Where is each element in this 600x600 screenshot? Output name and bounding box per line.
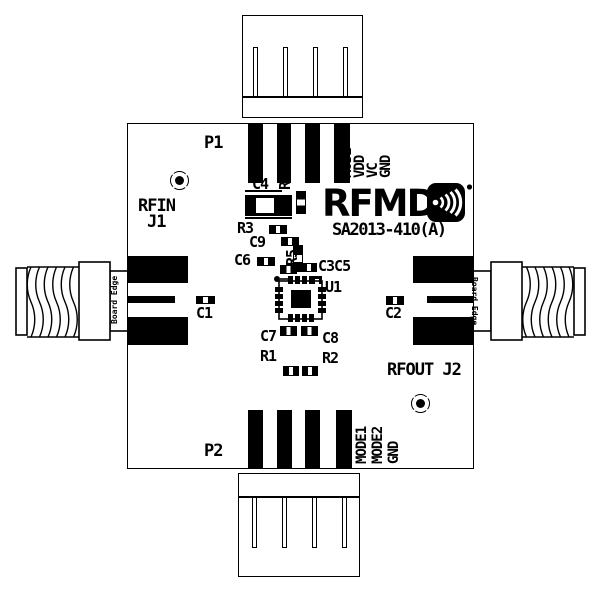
- component-c1: [196, 296, 215, 304]
- header-pin: [252, 497, 257, 548]
- rfout-ground-pad-bottom: [413, 317, 473, 345]
- component-r2: [302, 366, 318, 376]
- rfin-ground-pad-bottom: [128, 317, 188, 345]
- rfout-trace: [427, 296, 473, 303]
- label-c3c5: C3C5: [318, 259, 350, 274]
- component-c6: [257, 257, 275, 266]
- rfout-ground-pad-top: [413, 256, 473, 283]
- component-u1-qfn-footprint: [271, 272, 327, 326]
- header-pin: [283, 47, 288, 97]
- part-number: SA2013-410(A): [332, 222, 446, 239]
- pcb-assembly-drawing: { "colors": { "ink": "#000000", "bg": "#…: [0, 0, 600, 600]
- rfin-ground-pad-top: [128, 256, 188, 283]
- p2-pad: [305, 410, 320, 468]
- label-c9: C9: [249, 235, 265, 250]
- label-j1: J1: [147, 214, 165, 231]
- label-c2: C2: [385, 306, 401, 321]
- label-board-edge-left: Board Edge: [111, 276, 119, 324]
- component-c7: [280, 326, 297, 336]
- header-pin: [253, 47, 258, 97]
- mounting-hole-top-left: [170, 171, 189, 190]
- label-pin-mode2: MODE2: [371, 427, 385, 464]
- p2-pad: [248, 410, 263, 468]
- header-pin: [282, 497, 287, 548]
- rfin-trace: [128, 296, 175, 303]
- label-p2: P2: [204, 443, 222, 460]
- label-pin-mode1: MODE1: [355, 427, 369, 464]
- header-pin: [313, 47, 318, 97]
- label-pin-gnd-bottom-1: GND: [340, 442, 354, 464]
- component-r4: [296, 191, 306, 214]
- label-board-edge-right: Board Edge: [470, 277, 478, 325]
- label-r2: R2: [322, 351, 338, 366]
- label-c4: C4: [252, 177, 268, 192]
- label-pin-gnd-top: GND: [379, 156, 393, 178]
- sma-connector-right: [470, 252, 590, 348]
- header-pin: [342, 497, 347, 548]
- label-u1: U1: [325, 280, 341, 295]
- rfmd-logo-text: RFMD: [322, 187, 435, 222]
- component-c5: [301, 263, 317, 272]
- mounting-hole-bottom-right: [411, 394, 430, 413]
- header-pin: [312, 497, 317, 548]
- label-pin-gnd-bottom-2: GND: [387, 442, 401, 464]
- label-r1: R1: [260, 349, 276, 364]
- p2-pad: [277, 410, 292, 468]
- component-c4: [245, 195, 292, 216]
- component-r1: [283, 366, 299, 376]
- label-r5: R5: [285, 250, 300, 266]
- label-c7: C7: [260, 329, 276, 344]
- label-rfout-j2: RFOUT J2: [387, 362, 461, 379]
- header-pin: [343, 47, 348, 97]
- label-p1: P1: [204, 135, 222, 152]
- p1-pad: [305, 124, 320, 183]
- label-r4: R4: [278, 174, 293, 190]
- rfmd-wireless-arcs-icon: [427, 181, 473, 225]
- component-r3: [269, 225, 287, 234]
- label-c6: C6: [234, 253, 250, 268]
- component-c8: [301, 326, 318, 336]
- label-c1: C1: [196, 306, 212, 321]
- label-c8: C8: [322, 331, 338, 346]
